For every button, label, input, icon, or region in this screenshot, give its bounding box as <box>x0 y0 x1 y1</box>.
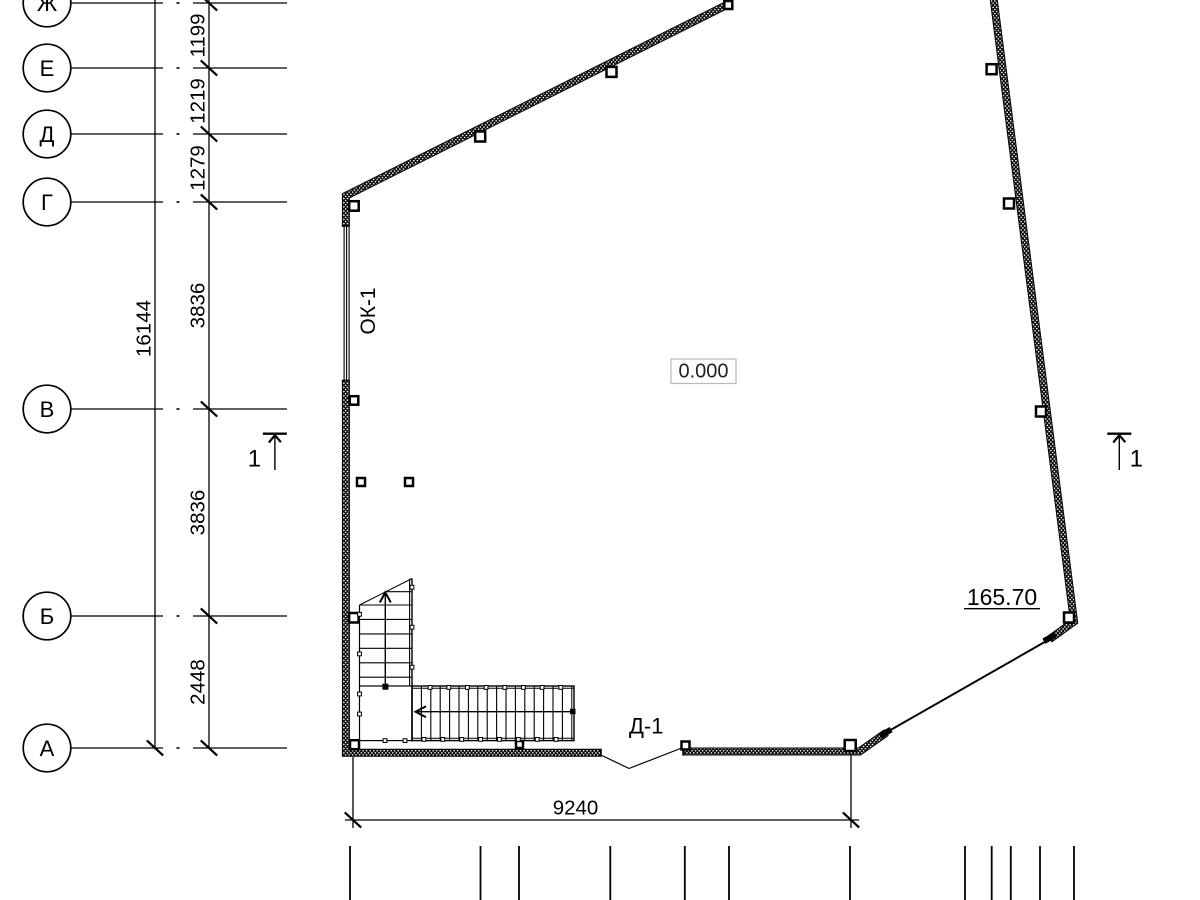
svg-text:Б: Б <box>40 604 54 629</box>
svg-text:0.000: 0.000 <box>678 361 728 383</box>
svg-text:Г: Г <box>41 190 53 215</box>
svg-text:3836: 3836 <box>187 283 210 329</box>
svg-text:1279: 1279 <box>187 145 210 191</box>
svg-text:Д: Д <box>40 122 55 147</box>
svg-text:1: 1 <box>1130 446 1143 473</box>
svg-text:1: 1 <box>248 446 261 473</box>
svg-text:9240: 9240 <box>553 797 599 820</box>
svg-text:В: В <box>40 397 55 422</box>
svg-text:Е: Е <box>40 56 55 81</box>
svg-text:Д-1: Д-1 <box>629 714 663 739</box>
svg-text:1199: 1199 <box>187 13 210 57</box>
svg-text:Ж: Ж <box>37 0 58 16</box>
svg-text:1219: 1219 <box>187 78 210 124</box>
svg-text:16144: 16144 <box>133 300 156 357</box>
svg-text:2448: 2448 <box>187 659 210 705</box>
svg-text:3836: 3836 <box>187 490 210 536</box>
svg-text:165.70: 165.70 <box>967 584 1037 610</box>
svg-text:ОК-1: ОК-1 <box>357 287 380 334</box>
svg-text:А: А <box>40 736 55 761</box>
